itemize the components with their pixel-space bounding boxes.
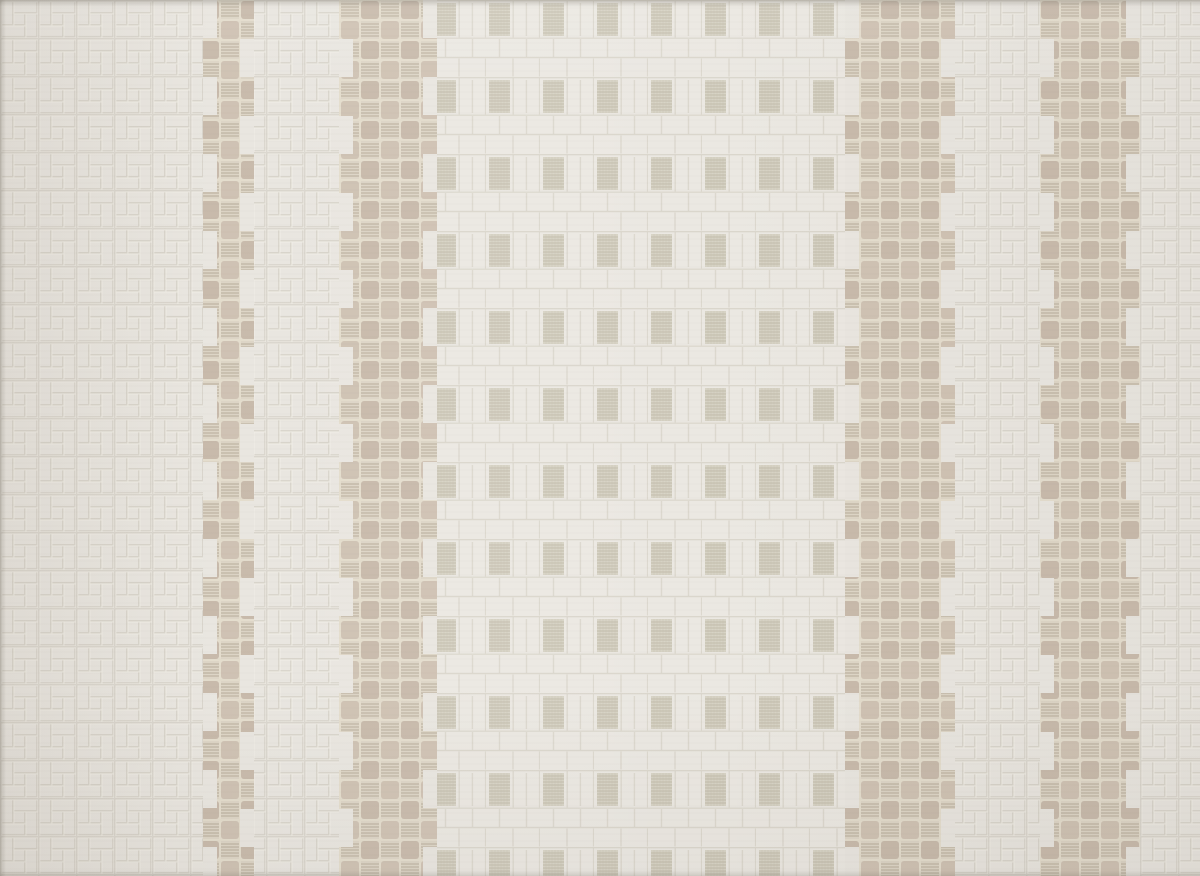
- stripe-wide-right-step-left: [845, 0, 859, 876]
- basket-weave-gap-left: [254, 0, 339, 876]
- basket-weave-panel-right: [1140, 0, 1200, 876]
- stripe-wide-left-step-right: [423, 0, 437, 876]
- stripe-right-step-right: [1126, 0, 1140, 876]
- fabric-render: [0, 0, 1200, 876]
- stripe-narrow-step-left: [203, 0, 217, 876]
- basket-weave-panel-left: [0, 0, 203, 876]
- basket-weave-gap-right: [955, 0, 1040, 876]
- fabric-swatch-photo: Close-up photograph of an off-white jacq…: [0, 0, 1200, 876]
- stripe-wide-right-step-right: [941, 0, 955, 876]
- accent-stripe-wide-right: [845, 0, 955, 876]
- accent-stripe-wide-left: [339, 0, 437, 876]
- accent-stripe-right: [1040, 0, 1140, 876]
- stripe-wide-left-step-left: [339, 0, 353, 876]
- stripe-right-step-left: [1040, 0, 1054, 876]
- stripe-narrow-step-right: [240, 0, 254, 876]
- center-block-panel: [437, 0, 845, 876]
